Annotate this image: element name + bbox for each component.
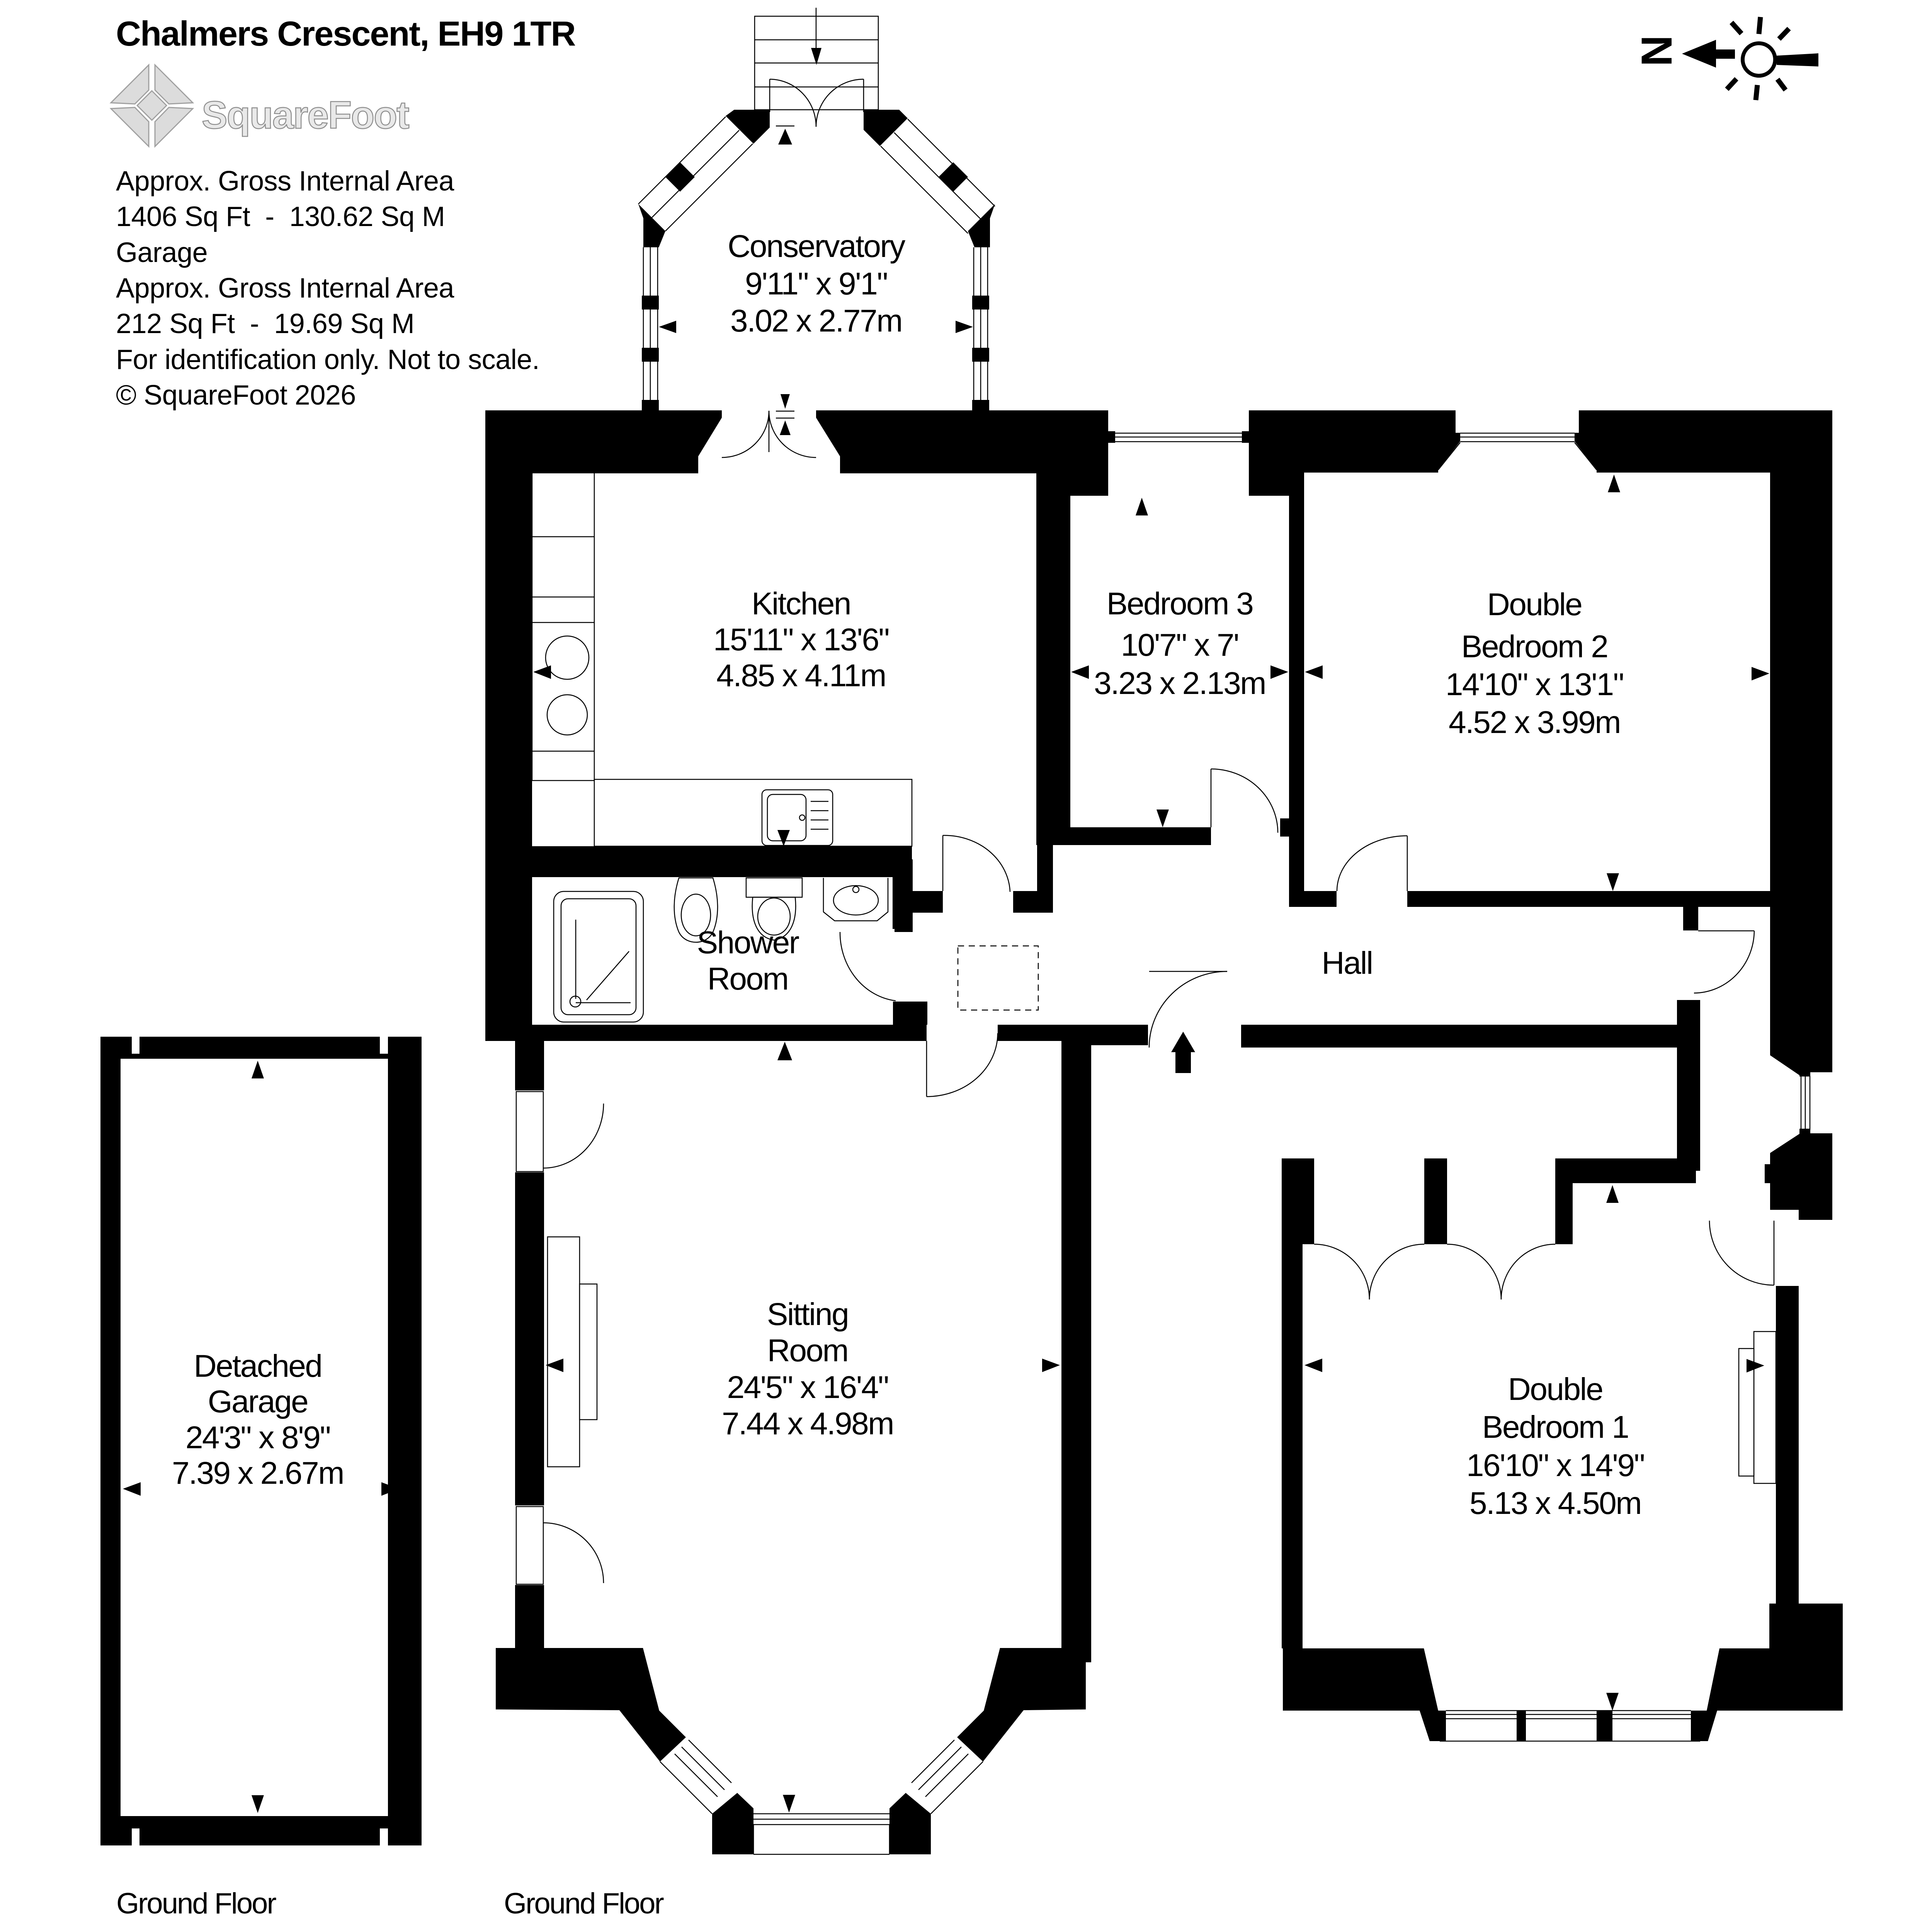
svg-text:24'5" x 16'4": 24'5" x 16'4" bbox=[727, 1370, 888, 1405]
svg-text:1406 Sq Ft - 130.62 Sq M: 1406 Sq Ft - 130.62 Sq M bbox=[116, 201, 445, 232]
svg-text:Double: Double bbox=[1487, 587, 1582, 622]
svg-text:Chalmers Crescent, EH9 1TR: Chalmers Crescent, EH9 1TR bbox=[116, 15, 575, 53]
svg-text:4.52 x 3.99m: 4.52 x 3.99m bbox=[1449, 705, 1620, 740]
svg-text:SquareFoot: SquareFoot bbox=[202, 94, 409, 137]
svg-text:Approx. Gross Internal Area: Approx. Gross Internal Area bbox=[116, 273, 454, 304]
svg-text:9'11" x 9'1": 9'11" x 9'1" bbox=[745, 266, 887, 301]
svg-text:Ground Floor: Ground Floor bbox=[504, 1887, 664, 1920]
svg-text:14'10" x 13'1": 14'10" x 13'1" bbox=[1446, 667, 1623, 702]
svg-text:Kitchen: Kitchen bbox=[752, 586, 850, 621]
svg-text:Conservatory: Conservatory bbox=[728, 229, 905, 264]
svg-text:212 Sq Ft - 19.69 Sq M: 212 Sq Ft - 19.69 Sq M bbox=[116, 308, 414, 339]
svg-text:Sitting: Sitting bbox=[767, 1297, 848, 1332]
svg-text:Bedroom 2: Bedroom 2 bbox=[1461, 629, 1608, 664]
svg-text:4.85 x 4.11m: 4.85 x 4.11m bbox=[716, 658, 886, 693]
svg-text:15'11" x 13'6": 15'11" x 13'6" bbox=[713, 622, 889, 657]
svg-text:Ground Floor: Ground Floor bbox=[116, 1887, 276, 1920]
svg-text:Detached: Detached bbox=[194, 1349, 321, 1384]
svg-text:24'3" x 8'9": 24'3" x 8'9" bbox=[185, 1420, 330, 1455]
svg-text:Double: Double bbox=[1508, 1372, 1603, 1407]
svg-text:7.39 x 2.67m: 7.39 x 2.67m bbox=[172, 1456, 344, 1491]
svg-text:Approx. Gross Internal Area: Approx. Gross Internal Area bbox=[116, 166, 454, 197]
svg-text:16'10" x 14'9": 16'10" x 14'9" bbox=[1466, 1448, 1644, 1483]
svg-text:5.13 x 4.50m: 5.13 x 4.50m bbox=[1469, 1486, 1641, 1521]
svg-text:10'7" x 7': 10'7" x 7' bbox=[1121, 628, 1238, 663]
svg-text:3.02 x 2.77m: 3.02 x 2.77m bbox=[730, 303, 902, 338]
svg-text:3.23 x 2.13m: 3.23 x 2.13m bbox=[1094, 666, 1265, 701]
svg-text:Bedroom 1: Bedroom 1 bbox=[1482, 1410, 1629, 1445]
svg-text:Garage: Garage bbox=[208, 1384, 308, 1419]
svg-text:Shower: Shower bbox=[697, 925, 799, 960]
svg-text:Garage: Garage bbox=[116, 237, 207, 268]
svg-text:7.44 x 4.98m: 7.44 x 4.98m bbox=[722, 1406, 893, 1441]
svg-text:N: N bbox=[1633, 35, 1681, 66]
svg-text:Room: Room bbox=[767, 1333, 848, 1368]
svg-text:Bedroom 3: Bedroom 3 bbox=[1107, 586, 1253, 621]
svg-text:© SquareFoot 2026: © SquareFoot 2026 bbox=[116, 380, 356, 411]
svg-text:Hall: Hall bbox=[1321, 946, 1372, 981]
svg-text:Room: Room bbox=[707, 961, 788, 997]
svg-text:For identification only. Not t: For identification only. Not to scale. bbox=[116, 344, 539, 375]
